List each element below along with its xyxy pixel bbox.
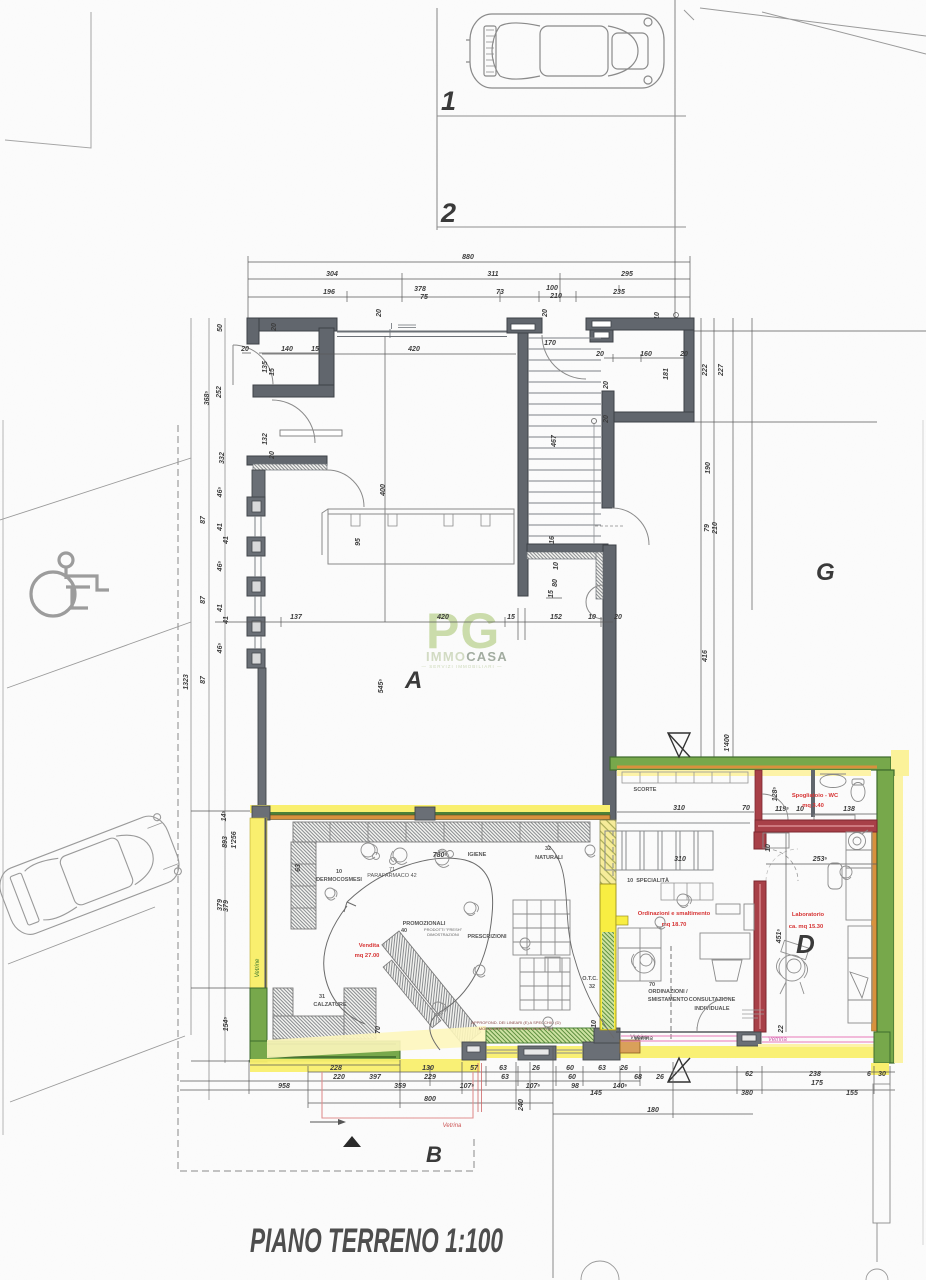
svg-text:A: A	[404, 667, 422, 694]
svg-text:20: 20	[603, 381, 610, 390]
svg-text:41: 41	[217, 604, 224, 613]
svg-text:152: 152	[550, 614, 562, 621]
svg-text:229: 229	[423, 1074, 436, 1081]
svg-text:545⁵: 545⁵	[378, 679, 385, 694]
svg-text:138: 138	[843, 806, 855, 813]
svg-text:378: 378	[414, 286, 426, 293]
svg-text:80: 80	[552, 579, 559, 587]
svg-text:170: 170	[544, 340, 556, 347]
svg-text:30: 30	[878, 1071, 886, 1078]
svg-text:400: 400	[380, 484, 387, 497]
svg-text:20: 20	[603, 415, 610, 424]
svg-text:INDIVIDUALE: INDIVIDUALE	[694, 1006, 729, 1012]
svg-text:IGIENE: IGIENE	[468, 852, 487, 858]
svg-text:70: 70	[649, 982, 655, 988]
svg-text:46⁵: 46⁵	[217, 487, 224, 499]
svg-text:253⁵: 253⁵	[812, 856, 828, 863]
svg-text:10: 10	[588, 614, 596, 621]
svg-text:NATURALI: NATURALI	[535, 855, 563, 861]
svg-text:68: 68	[634, 1074, 642, 1081]
svg-text:135: 135	[262, 361, 269, 373]
svg-text:140⁵: 140⁵	[613, 1083, 628, 1090]
svg-text:CALZATURE: CALZATURE	[313, 1002, 347, 1008]
svg-text:MODULARE CON POSSIBILI ADATTI: MODULARE CON POSSIBILI ADATTI (E)	[479, 1026, 554, 1031]
svg-text:132: 132	[262, 433, 269, 445]
svg-text:20: 20	[542, 309, 549, 318]
svg-text:32: 32	[589, 984, 595, 990]
svg-text:310: 310	[673, 805, 685, 812]
svg-text:PIANO TERRENO 1:100: PIANO TERRENO 1:100	[250, 1222, 503, 1260]
svg-text:46⁵: 46⁵	[217, 643, 224, 655]
svg-text:ORDINAZIONI /: ORDINAZIONI /	[648, 989, 688, 995]
svg-text:2: 2	[440, 198, 456, 228]
svg-text:14⁵: 14⁵	[221, 811, 228, 822]
svg-text:Vetrine: Vetrine	[255, 958, 261, 977]
svg-text:APPROFOND. DEI LINEARI (E) A S: APPROFOND. DEI LINEARI (E) A SPECCHIO (D…	[471, 1020, 561, 1025]
svg-text:235: 235	[612, 289, 625, 296]
svg-text:379: 379	[223, 900, 230, 912]
svg-text:63: 63	[501, 1074, 509, 1081]
svg-text:1323: 1323	[183, 674, 190, 690]
svg-text:190: 190	[705, 462, 712, 474]
svg-text:416: 416	[702, 650, 709, 663]
svg-text:DIMOSTRAZIONI: DIMOSTRAZIONI	[427, 932, 459, 937]
svg-text:31: 31	[319, 994, 325, 1000]
svg-text:181: 181	[663, 368, 670, 380]
svg-text:130: 130	[422, 1065, 434, 1072]
svg-text:379: 379	[217, 899, 224, 911]
svg-text:420: 420	[407, 346, 420, 353]
svg-text:227: 227	[718, 363, 725, 377]
svg-text:60: 60	[568, 1074, 576, 1081]
svg-text:D: D	[796, 929, 815, 959]
svg-text:DERMOCOSMESI: DERMOCOSMESI	[316, 877, 362, 883]
svg-text:20: 20	[613, 614, 622, 621]
svg-text:20: 20	[679, 351, 688, 358]
svg-text:10: 10	[553, 562, 560, 570]
svg-text:20: 20	[269, 451, 276, 460]
svg-text:41: 41	[223, 536, 230, 545]
svg-text:467: 467	[551, 434, 558, 448]
svg-text:41: 41	[217, 523, 224, 532]
svg-text:79: 79	[704, 524, 711, 532]
svg-text:SMISTAMENTO: SMISTAMENTO	[648, 997, 689, 1003]
svg-text:958: 958	[278, 1083, 290, 1090]
svg-text:1'400: 1'400	[724, 734, 731, 751]
svg-text:20: 20	[595, 351, 604, 358]
svg-text:332: 332	[219, 452, 226, 464]
svg-text:210: 210	[712, 522, 719, 535]
svg-text:160: 160	[640, 351, 652, 358]
svg-text:Vetrina: Vetrina	[768, 1037, 787, 1043]
svg-text:155: 155	[846, 1090, 858, 1097]
svg-text:Spogliatoio - WC: Spogliatoio - WC	[792, 793, 839, 799]
svg-text:107⁵: 107⁵	[460, 1083, 475, 1090]
svg-text:SCORTE: SCORTE	[634, 787, 657, 793]
svg-text:310: 310	[674, 856, 686, 863]
svg-text:mq 27.00: mq 27.00	[355, 953, 380, 959]
svg-text:420: 420	[436, 614, 449, 621]
svg-text:O.T.C.: O.T.C.	[582, 976, 598, 982]
svg-text:63: 63	[499, 1065, 507, 1072]
svg-text:10: 10	[336, 869, 342, 875]
svg-text:15: 15	[269, 368, 276, 376]
svg-text:311: 311	[487, 271, 498, 278]
svg-text:87: 87	[200, 675, 207, 684]
svg-text:63: 63	[598, 1065, 606, 1072]
svg-text:PARAFARMACO 42: PARAFARMACO 42	[367, 873, 416, 879]
svg-text:240: 240	[518, 1099, 525, 1112]
svg-text:41: 41	[223, 616, 230, 625]
svg-text:196: 196	[323, 289, 335, 296]
svg-text:PRESCRIZIONI: PRESCRIZIONI	[467, 934, 507, 940]
svg-text:75: 75	[420, 294, 428, 301]
svg-text:Vendita: Vendita	[359, 943, 380, 949]
svg-text:107⁵: 107⁵	[526, 1083, 541, 1090]
svg-text:16: 16	[549, 536, 556, 544]
svg-text:IMMOCASA: IMMOCASA	[426, 649, 508, 664]
svg-text:880: 880	[462, 254, 474, 261]
svg-text:15: 15	[548, 590, 555, 598]
svg-text:15: 15	[507, 614, 515, 621]
svg-text:46⁵: 46⁵	[217, 561, 224, 573]
svg-text:175: 175	[811, 1080, 823, 1087]
svg-text:20: 20	[376, 309, 383, 318]
svg-text:222: 222	[702, 364, 709, 377]
svg-text:Laboratorio: Laboratorio	[792, 912, 825, 918]
svg-text:Vetrina: Vetrina	[443, 1123, 462, 1129]
svg-text:1: 1	[441, 86, 456, 116]
svg-text:Ordinazioni e smaltimento: Ordinazioni e smaltimento	[638, 911, 711, 917]
svg-text:26: 26	[655, 1074, 664, 1081]
svg-text:145: 145	[590, 1090, 602, 1097]
svg-text:210: 210	[549, 293, 562, 300]
svg-text:180: 180	[647, 1107, 659, 1114]
svg-text:26: 26	[531, 1065, 540, 1072]
svg-text:Vetrina: Vetrina	[634, 1036, 653, 1042]
svg-text:70: 70	[742, 805, 750, 812]
svg-text:98: 98	[571, 1083, 579, 1090]
svg-text:40: 40	[401, 928, 407, 934]
svg-text:57: 57	[470, 1065, 479, 1072]
svg-text:6: 6	[867, 1071, 871, 1078]
svg-text:87: 87	[200, 515, 207, 524]
svg-text:154⁵: 154⁵	[223, 1017, 230, 1032]
svg-text:73: 73	[496, 289, 504, 296]
svg-text:15: 15	[311, 346, 319, 353]
svg-text:228: 228	[329, 1065, 342, 1072]
svg-text:10: 10	[591, 1020, 598, 1028]
svg-text:800: 800	[424, 1096, 436, 1103]
svg-text:380: 380	[741, 1090, 753, 1097]
svg-text:304: 304	[326, 271, 338, 278]
svg-text:60: 60	[566, 1065, 574, 1072]
svg-text:1'256: 1'256	[231, 831, 238, 848]
svg-text:G: G	[816, 559, 835, 586]
svg-text:295: 295	[620, 271, 633, 278]
svg-text:B: B	[426, 1142, 442, 1167]
svg-text:mq 3.40: mq 3.40	[802, 803, 824, 809]
svg-text:87: 87	[200, 595, 207, 604]
svg-text:50: 50	[217, 324, 224, 332]
svg-text:359: 359	[394, 1083, 406, 1090]
svg-text:63: 63	[295, 864, 302, 872]
svg-text:140: 140	[281, 346, 293, 353]
svg-text:368⁵: 368⁵	[204, 391, 211, 406]
svg-text:70: 70	[375, 1026, 382, 1034]
svg-text:451⁵: 451⁵	[776, 929, 783, 945]
svg-text:893: 893	[222, 836, 229, 848]
svg-text:95: 95	[355, 538, 362, 546]
svg-text:20: 20	[271, 323, 278, 332]
svg-text:220: 220	[332, 1074, 345, 1081]
svg-text:20: 20	[240, 346, 249, 353]
svg-text:252: 252	[216, 386, 223, 399]
svg-text:32: 32	[545, 846, 551, 852]
svg-text:137: 137	[290, 614, 303, 621]
svg-text:238: 238	[808, 1071, 821, 1078]
svg-text:22: 22	[778, 1025, 785, 1034]
svg-text:397: 397	[369, 1074, 382, 1081]
svg-text:10 SPECIALITÀ: 10 SPECIALITÀ	[627, 877, 669, 884]
svg-text:— SERVIZI IMMOBILIARI —: — SERVIZI IMMOBILIARI —	[422, 664, 503, 669]
svg-text:100: 100	[546, 285, 558, 292]
svg-text:26: 26	[619, 1065, 628, 1072]
svg-text:62: 62	[745, 1071, 753, 1078]
